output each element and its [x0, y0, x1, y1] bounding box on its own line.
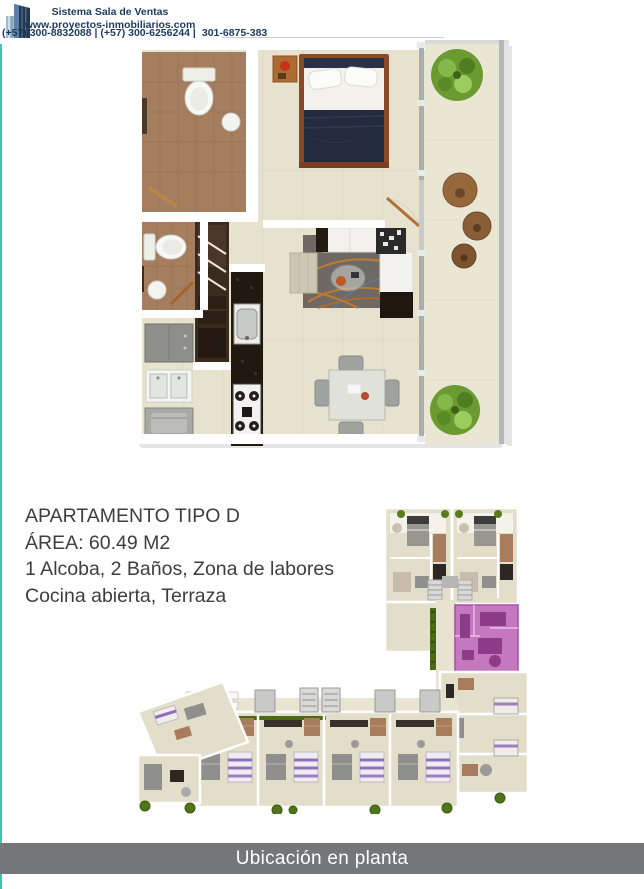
bathroom-1	[142, 52, 246, 212]
footer-caption-bar: Ubicación en planta	[0, 843, 644, 874]
nightstand	[273, 56, 297, 82]
apartment-floorplan-render	[133, 40, 513, 455]
tv-table	[380, 292, 413, 318]
utility-sink-icon	[146, 370, 192, 402]
sink-icon	[148, 281, 166, 299]
armchair-patterned	[376, 228, 406, 254]
shower-fixture	[142, 98, 147, 134]
toilet-icon	[183, 68, 215, 115]
phone-numbers: (+57) 300-8832088 | (+57) 300-6256244 |	[2, 27, 196, 39]
footer-caption: Ubicación en planta	[236, 848, 409, 870]
dining-table	[329, 370, 385, 420]
header-divider-line	[222, 37, 444, 38]
sink-icon	[222, 113, 240, 131]
kitchen-sink-icon	[234, 304, 260, 344]
phone-line: (+57) 300-8832088 | (+57) 300-6256244 | …	[2, 26, 252, 39]
kitchen-island	[231, 270, 263, 446]
hedge	[430, 608, 436, 670]
armchair	[290, 253, 317, 293]
highlighted-unit-tipo-d	[455, 605, 518, 672]
brand-name: Sistema Sala de Ventas	[0, 6, 220, 19]
stove-icon	[233, 384, 261, 438]
toilet-icon	[144, 234, 186, 260]
brochure-page: Sistema Sala de Ventas www.proyectos-inm…	[0, 0, 644, 889]
terrace-plant-top	[431, 49, 483, 101]
terrace-plant-bottom	[430, 385, 480, 435]
bathroom-2	[139, 222, 200, 310]
laundry-zone	[145, 324, 193, 438]
left-accent-line	[0, 44, 2, 889]
corner-unit	[138, 755, 200, 803]
building-location-plan	[128, 502, 532, 814]
bed	[299, 54, 389, 168]
coffee-table	[331, 265, 365, 291]
living-room	[290, 228, 413, 318]
washer-icon	[145, 408, 193, 438]
